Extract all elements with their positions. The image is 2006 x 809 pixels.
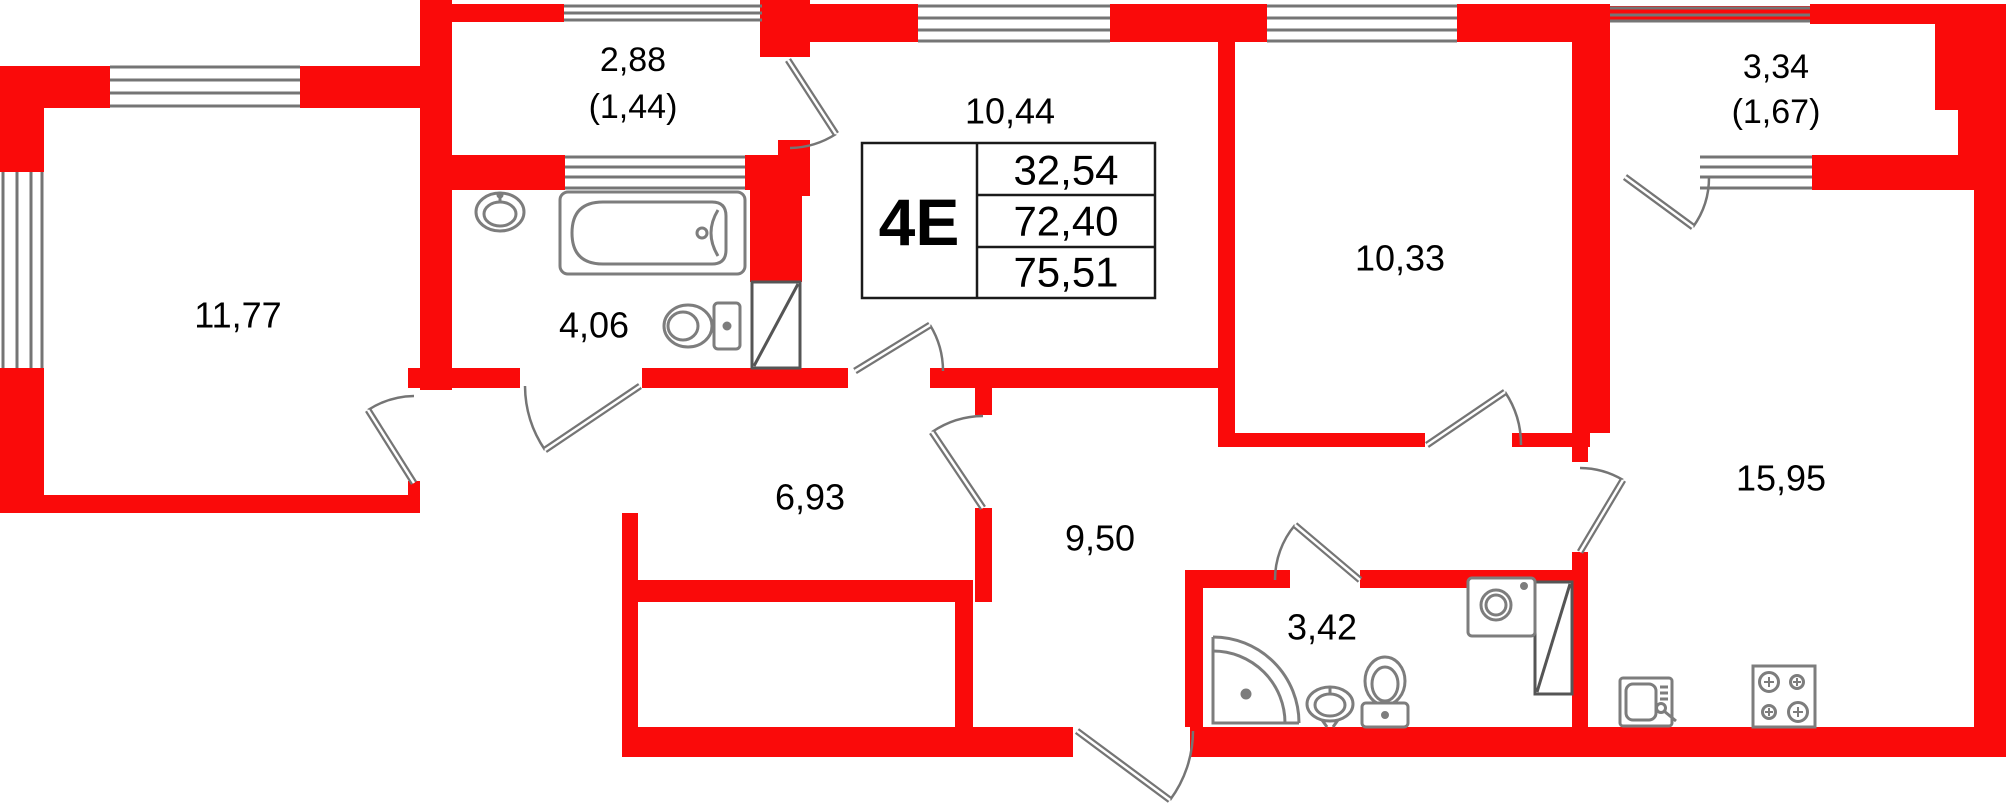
wall-segment (1185, 588, 1203, 727)
kitchen-sink-icon (1620, 678, 1676, 726)
wall-segment (1974, 107, 2006, 757)
wall-segment (1572, 552, 1588, 740)
window-icon (3, 172, 42, 368)
room-area-label-balcony-2: 3,34 (1743, 48, 1809, 86)
wall-segment (802, 368, 848, 388)
bathtub-icon (560, 192, 745, 274)
vent-shaft-icon (752, 282, 800, 368)
wall-segment (0, 66, 44, 172)
door-balcony-2 (1625, 177, 1709, 227)
wall-segment (1572, 433, 1588, 462)
unit-area-row: 72,40 (1013, 198, 1118, 245)
room-area-label-bathroom: 4,06 (559, 305, 629, 346)
room-area-label-room-3: 10,33 (1355, 238, 1445, 279)
shower-cabin-icon (1213, 637, 1299, 723)
wash-basin-icon (476, 192, 524, 231)
unit-area-row: 32,54 (1013, 147, 1118, 194)
wall-segment (810, 4, 918, 42)
wall-segment (750, 190, 802, 282)
wall-segment (750, 368, 802, 388)
window-icon (110, 67, 300, 106)
wall-segment (622, 727, 1073, 757)
wall-segment (1457, 4, 1610, 42)
toilet-icon (1362, 657, 1408, 727)
toilet-icon (664, 303, 740, 349)
vent-shafts (752, 282, 1572, 694)
wall-segment (0, 495, 420, 513)
wall-segment (0, 368, 44, 513)
door-room-2 (855, 325, 943, 371)
wall-segment (975, 375, 992, 415)
stove-icon (1753, 666, 1815, 727)
door-entrance (1077, 731, 1193, 800)
door-bathroom (525, 386, 640, 450)
wall-segment (1812, 155, 1958, 190)
door-balcony-1 (788, 60, 836, 148)
wall-segment (1190, 727, 2006, 757)
wall-segment (975, 508, 992, 602)
room-area-label-balcony-1-reduced: (1,44) (589, 88, 678, 126)
door-room-1 (368, 396, 414, 483)
floor-plan-drawing: 4Е 32,54 72,40 75,51 11,77 2,88 (1,44) 4… (0, 0, 2006, 809)
wall-segment (638, 580, 973, 602)
room-area-label-balcony-1: 2,88 (600, 41, 666, 79)
room-area-label-room-1: 11,77 (194, 295, 281, 336)
wall-segment (1600, 22, 1610, 155)
wall-segment (1218, 433, 1425, 447)
wall-segment (622, 513, 638, 757)
window-icon (918, 6, 1110, 41)
door-kitchen (1580, 468, 1623, 552)
wall-segment (408, 368, 520, 388)
room-area-label-hall: 9,50 (1065, 518, 1135, 559)
info-table: 4Е 32,54 72,40 75,51 (862, 143, 1155, 298)
room-area-label-room-2: 10,44 (965, 91, 1055, 132)
unit-area-row: 75,51 (1013, 249, 1118, 296)
wall-segment (420, 0, 452, 390)
wall-segment (642, 368, 750, 388)
room-area-label-kitchen: 15,95 (1736, 458, 1826, 499)
wall-segment (452, 155, 565, 190)
wall-segment (1110, 4, 1267, 42)
room-area-label-corridor: 6,93 (775, 477, 845, 518)
wall-segment (955, 602, 973, 727)
wall-segment (408, 481, 420, 497)
pedestal-sink-icon (1307, 687, 1353, 727)
vent-shaft-icon (1535, 582, 1572, 694)
window-icon (1700, 157, 1812, 188)
window-icon (564, 6, 762, 20)
wall-segment (1810, 4, 2006, 24)
door-corridor-hall (932, 416, 983, 508)
floor-plan: 4Е 32,54 72,40 75,51 11,77 2,88 (1,44) 4… (0, 0, 2006, 809)
window-icon (1267, 6, 1457, 41)
window-icon (565, 157, 745, 188)
room-area-label-balcony-2-reduced: (1,67) (1732, 93, 1821, 131)
washing-machine-icon (1468, 578, 1535, 636)
wall-segment (1218, 42, 1235, 447)
wall-segment (452, 4, 564, 22)
unit-code: 4Е (879, 185, 960, 259)
wall-segment (760, 0, 810, 57)
door-room-3 (1427, 392, 1521, 445)
room-area-label-shower-room: 3,42 (1287, 607, 1357, 648)
wall-segment (300, 66, 420, 108)
